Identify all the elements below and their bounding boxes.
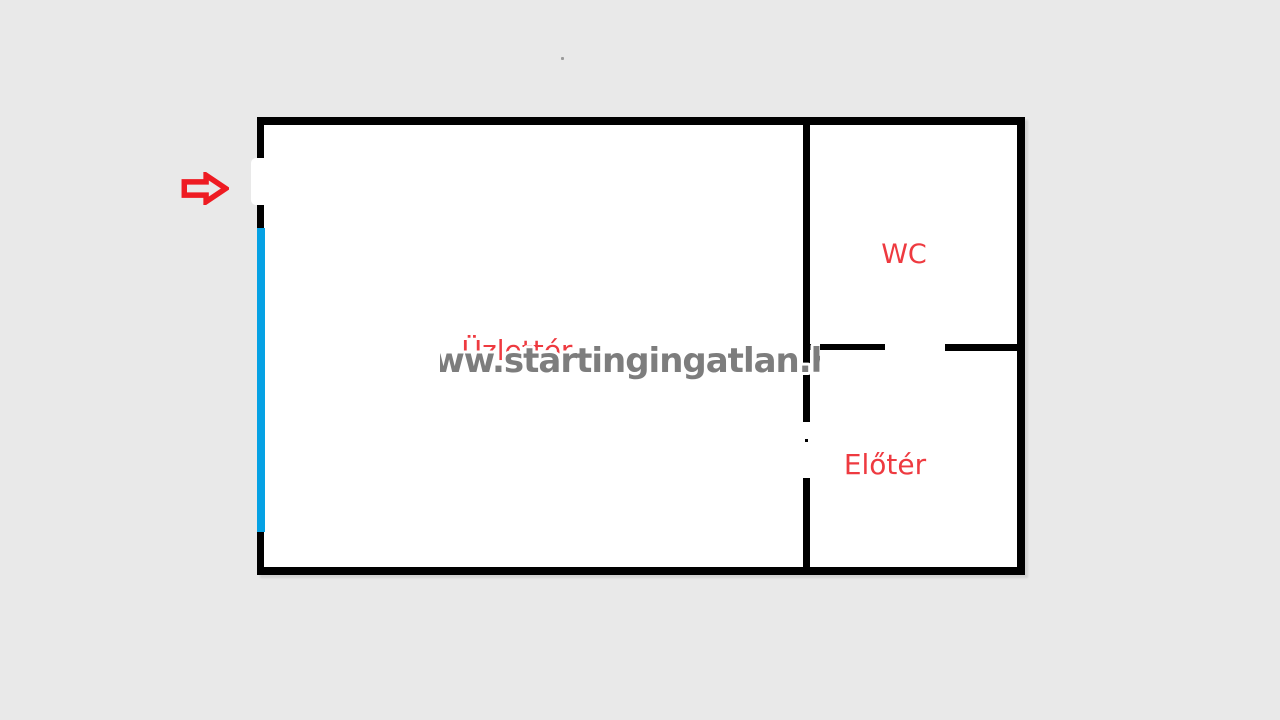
entrance-door-gap (251, 158, 266, 205)
wall-wc-divider-right (945, 344, 1017, 351)
floorplan (257, 117, 1025, 575)
wall-bottom (257, 567, 1025, 575)
entrance-arrow-icon (181, 172, 229, 205)
window-marker (257, 228, 265, 532)
wall-right (1017, 117, 1025, 575)
door-mark-dot (805, 439, 808, 442)
room-label-wc: WC (859, 239, 949, 271)
room-label-uzletter: Üzlettér (457, 335, 577, 367)
wall-partition-upper (803, 124, 810, 422)
wall-top (257, 117, 1025, 125)
wall-wc-divider-left (803, 344, 885, 350)
room-label-eloter: Előtér (840, 449, 930, 481)
artifact-dot (561, 57, 564, 60)
floorplan-canvas: Üzlettér WC Előtér www.startingingatlan.… (0, 0, 1280, 720)
wall-partition-lower (803, 478, 810, 567)
